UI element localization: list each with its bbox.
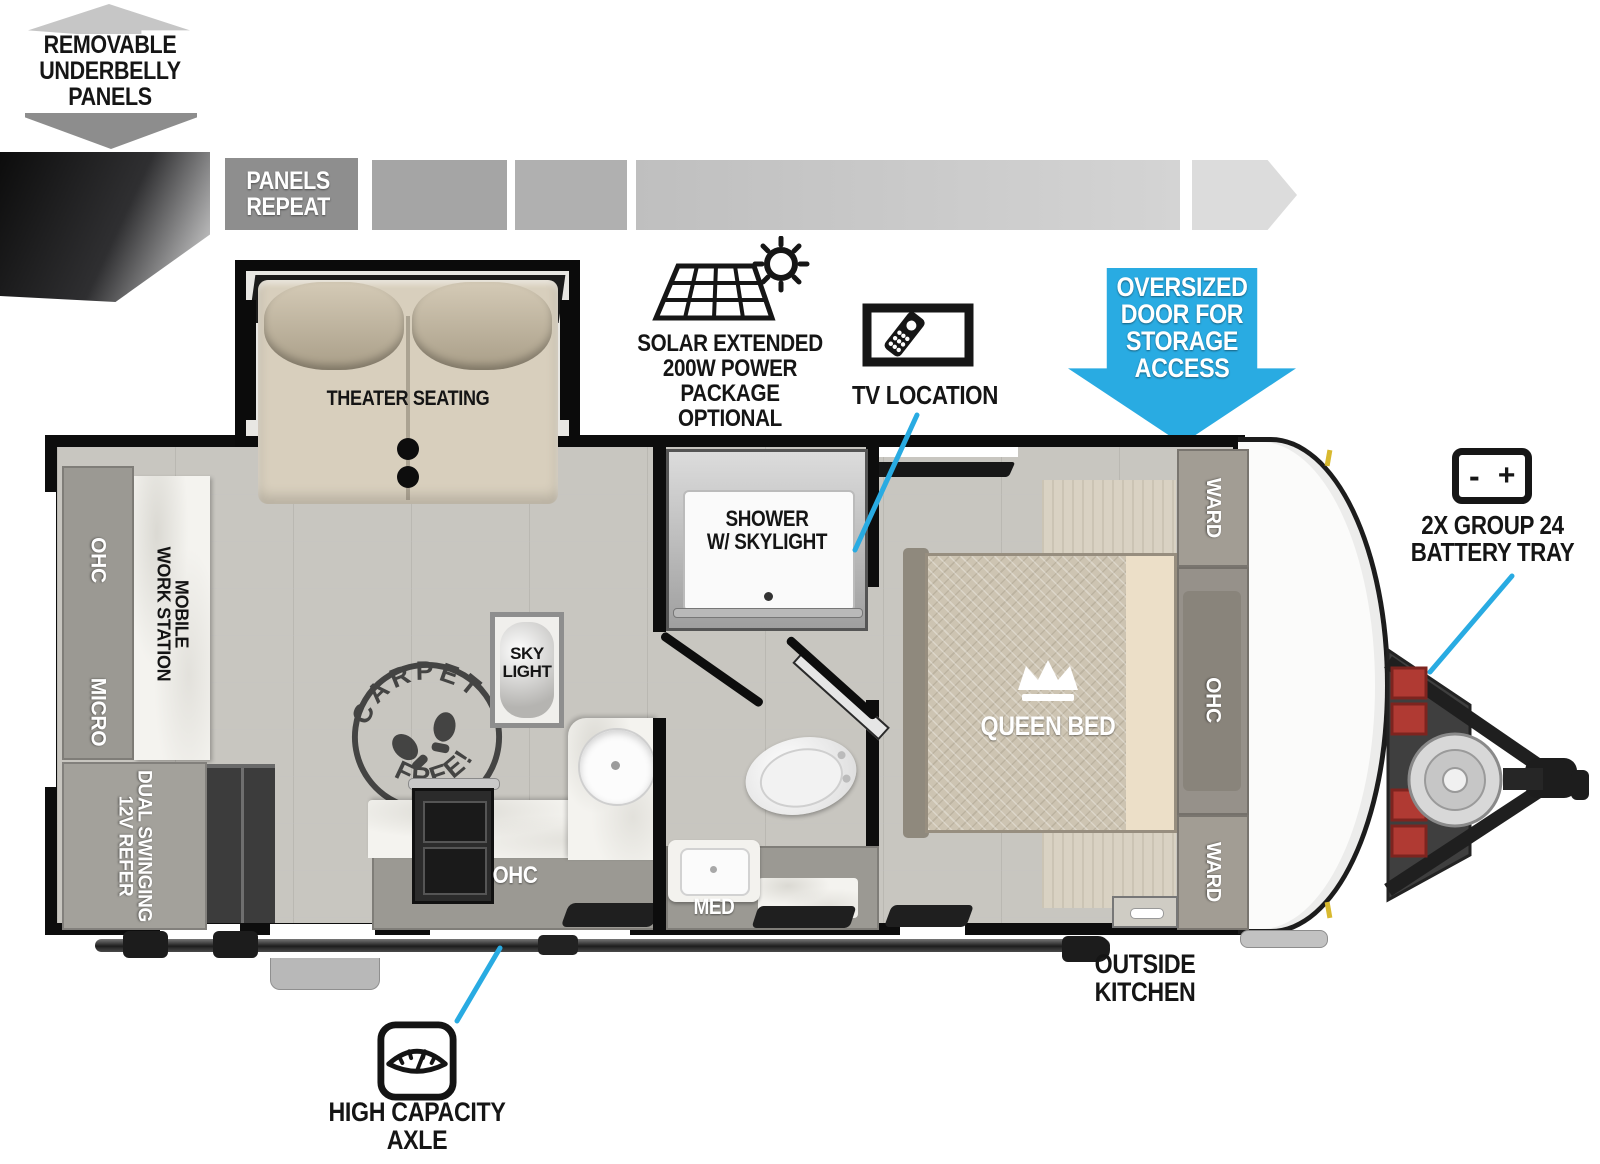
solar-panel-icon <box>650 236 820 336</box>
panels-repeat-box: PANELS REPEAT <box>225 158 358 230</box>
axle-label: HIGH CAPACITY AXLE <box>327 1098 508 1154</box>
sink-drain <box>611 761 620 770</box>
oversized-door-arrow: OVERSIZED DOOR FOR STORAGE ACCESS <box>1068 268 1296 444</box>
theater-seating-label: THEATER SEATING <box>279 388 537 410</box>
shower-drain <box>764 592 773 601</box>
outside-kitchen-shelf <box>1240 930 1328 948</box>
rear-window <box>45 492 56 787</box>
panels-repeat-label: PANELS REPEAT <box>234 168 348 220</box>
bath-mat <box>751 906 856 928</box>
outside-kitchen-label: OUTSIDE KITCHEN <box>1063 950 1226 1006</box>
seat-back-cushion <box>264 282 404 370</box>
battery-minus: - <box>1469 460 1479 492</box>
clearance-light <box>1325 450 1333 467</box>
slideout-window <box>244 300 256 420</box>
refer-label: DUAL SWINGING 12V REFER <box>115 770 154 922</box>
entry-door-opening <box>270 924 375 935</box>
slideout-window <box>560 300 572 420</box>
panel-segment <box>372 160 507 230</box>
med-vanity <box>668 840 760 902</box>
shower-door-track <box>673 608 863 618</box>
clearance-light <box>1325 902 1333 919</box>
panel-segment <box>636 160 1180 230</box>
ward-top-label: WARD <box>1203 478 1223 538</box>
axle-leader-line <box>457 948 500 1021</box>
outside-kitchen-drawer <box>1112 896 1178 928</box>
entry-step <box>270 958 380 990</box>
bedroom-mat <box>884 905 974 927</box>
rail-fitting <box>123 931 168 958</box>
bedroom-window <box>872 447 1018 457</box>
scale-icon <box>376 1020 458 1102</box>
cupholder <box>397 438 419 460</box>
tongue-assembly <box>1375 610 1600 940</box>
battery-label: 2X GROUP 24 BATTERY TRAY <box>1400 512 1585 566</box>
underbelly-panel-photo <box>0 152 210 302</box>
skylight-label: SKY LIGHT <box>495 645 559 680</box>
queen-bed-label: QUEEN BED <box>953 712 1142 740</box>
crown-icon <box>1012 655 1084 705</box>
micro-label: MICRO <box>87 678 108 747</box>
seat-back-cushion <box>412 282 552 370</box>
ohc-kitchen-label: OHC <box>476 864 553 889</box>
up-arrow-icon <box>28 4 190 34</box>
panel-segment-arrow <box>1192 160 1297 230</box>
bedroom-vent <box>869 462 1016 477</box>
bed-platform-corner <box>1042 480 1176 554</box>
rail-fitting <box>213 931 258 958</box>
rail-fitting <box>538 935 578 955</box>
bed-sheet-band <box>1126 556 1174 830</box>
shower-pan: SHOWER W/ SKYLIGHT <box>666 449 868 631</box>
panel-segment <box>515 160 627 230</box>
fridge-body <box>207 764 275 923</box>
skylight-box: SKY LIGHT <box>490 612 564 728</box>
ohc-rear-label: OHC <box>87 537 108 583</box>
floorplan-diagram: REMOVABLE UNDERBELLY PANELS PANELS REPEA… <box>0 0 1600 1164</box>
entry-mat <box>561 903 662 927</box>
solar-label: SOLAR EXTENDED 200W POWER PACKAGE OPTION… <box>614 332 846 432</box>
workstation-label: MOBILE WORK STATION <box>154 547 191 682</box>
battery-plus: + <box>1498 461 1515 491</box>
ward-bottom-label: WARD <box>1203 842 1223 902</box>
bath-wall <box>653 447 666 632</box>
tv-icon <box>862 303 974 367</box>
bath-wall <box>653 718 666 930</box>
underbelly-label: REMOVABLE UNDERBELLY PANELS <box>20 32 201 110</box>
ohc-bedroom-label: OHC <box>1202 677 1223 723</box>
tv-label: TV LOCATION <box>852 382 998 409</box>
med-label: MED <box>678 896 750 919</box>
cupholder <box>397 466 419 488</box>
front-cap <box>1238 437 1390 934</box>
shower-label: SHOWER W/ SKYLIGHT <box>683 508 852 554</box>
theater-seat: THEATER SEATING <box>258 280 558 504</box>
oversized-door-label: OVERSIZED DOOR FOR STORAGE ACCESS <box>1084 268 1280 382</box>
down-arrow-icon <box>25 113 197 149</box>
battery-icon: - + <box>1452 448 1532 504</box>
